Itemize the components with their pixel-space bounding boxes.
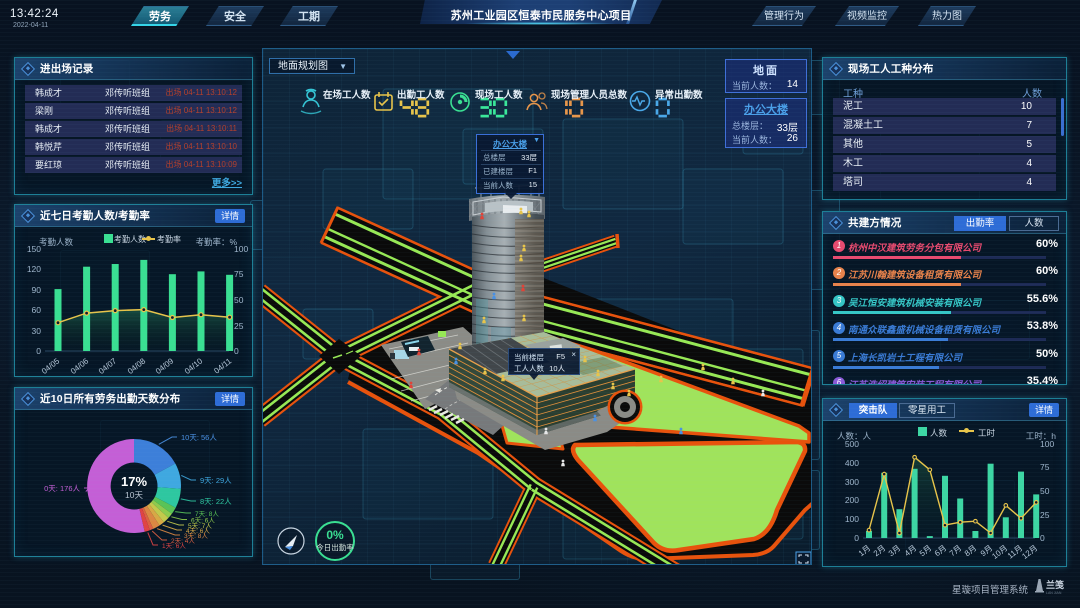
svg-text:0天: 176人: 0天: 176人 bbox=[44, 484, 80, 493]
svg-text:100: 100 bbox=[1040, 439, 1054, 449]
svg-text:兰笺: 兰笺 bbox=[1046, 579, 1064, 590]
svg-text:1天: 6人: 1天: 6人 bbox=[162, 542, 186, 550]
svg-text:7月: 7月 bbox=[948, 543, 963, 558]
svg-text:75: 75 bbox=[234, 269, 244, 279]
svg-text:90: 90 bbox=[32, 285, 42, 295]
svg-text:60: 60 bbox=[32, 305, 42, 315]
svg-text:04/06: 04/06 bbox=[69, 356, 91, 376]
svg-text:LAN JIAN: LAN JIAN bbox=[1046, 591, 1062, 595]
svg-text:04/05: 04/05 bbox=[40, 356, 62, 376]
svg-text:50: 50 bbox=[1040, 486, 1050, 496]
svg-text:04/09: 04/09 bbox=[154, 356, 176, 376]
svg-text:0: 0 bbox=[854, 533, 859, 543]
svg-text:8月: 8月 bbox=[963, 543, 978, 558]
svg-text:120: 120 bbox=[27, 264, 41, 274]
svg-text:6月: 6月 bbox=[933, 543, 948, 558]
svg-text:100: 100 bbox=[234, 244, 248, 254]
svg-text:50: 50 bbox=[234, 295, 244, 305]
svg-text:0%: 0% bbox=[326, 528, 344, 542]
svg-text:12月: 12月 bbox=[1020, 543, 1039, 561]
svg-text:0: 0 bbox=[36, 346, 41, 356]
svg-text:2月: 2月 bbox=[872, 543, 887, 558]
svg-text:17%: 17% bbox=[121, 474, 147, 489]
svg-text:25: 25 bbox=[234, 321, 244, 331]
svg-text:今日出勤率: 今日出勤率 bbox=[316, 542, 354, 552]
svg-text:30: 30 bbox=[32, 326, 42, 336]
svg-text:04/07: 04/07 bbox=[97, 356, 119, 376]
svg-text:04/10: 04/10 bbox=[183, 356, 205, 376]
svg-text:0: 0 bbox=[234, 346, 239, 356]
svg-text:3月: 3月 bbox=[887, 543, 902, 558]
svg-text:400: 400 bbox=[845, 458, 859, 468]
svg-text:500: 500 bbox=[845, 439, 859, 449]
svg-text:04/08: 04/08 bbox=[126, 356, 148, 376]
svg-text:75: 75 bbox=[1040, 462, 1050, 472]
svg-text:200: 200 bbox=[845, 495, 859, 505]
svg-text:300: 300 bbox=[845, 477, 859, 487]
svg-text:4月: 4月 bbox=[903, 543, 918, 558]
svg-text:9天: 29人: 9天: 29人 bbox=[200, 476, 232, 485]
svg-text:8天: 22人: 8天: 22人 bbox=[200, 497, 232, 506]
svg-text:5月: 5月 bbox=[918, 543, 933, 558]
svg-text:100: 100 bbox=[845, 514, 859, 524]
svg-text:10天: 56人: 10天: 56人 bbox=[181, 433, 217, 442]
svg-text:25: 25 bbox=[1040, 510, 1050, 520]
svg-text:0: 0 bbox=[1040, 533, 1045, 543]
svg-text:10天: 10天 bbox=[125, 490, 143, 500]
svg-text:150: 150 bbox=[27, 244, 41, 254]
svg-text:1月: 1月 bbox=[857, 543, 872, 558]
svg-text:04/11: 04/11 bbox=[212, 356, 233, 375]
